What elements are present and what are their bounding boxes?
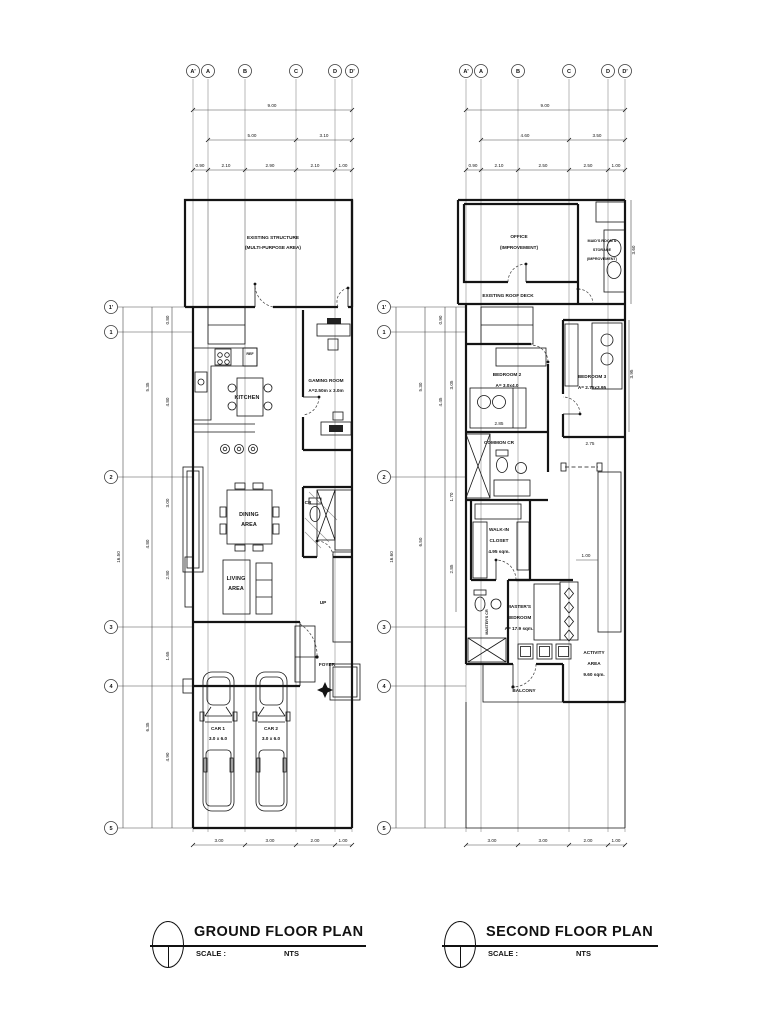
dim-label: 3.60 (631, 245, 636, 254)
ground-left-dimensions: 16.50 5.35 4.80 6.35 0.80 4.80 3.00 2.80… (116, 315, 170, 761)
dim-label: 2.00 (584, 838, 593, 843)
room-label-balcony: BALCONY (512, 688, 536, 693)
grid-col-label: A (479, 69, 483, 75)
grid-row-label: 5 (382, 826, 385, 832)
dim-label: 5.30 (418, 382, 423, 391)
dim-label: 1.00 (612, 163, 621, 168)
car2-size: 3.0 x 6.0 (262, 736, 281, 741)
dim-label: 1.00 (582, 553, 591, 558)
dim-label: 9.00 (268, 103, 277, 108)
second-stairs-main: 1.00 (561, 463, 621, 632)
car-1 (200, 672, 237, 811)
grid-col-label: C (294, 69, 298, 75)
ground-walls (183, 200, 360, 828)
dim-label: 2.90 (266, 163, 275, 168)
ground-plan-title: GROUND FLOOR PLAN (194, 924, 364, 940)
room-area-activity: 9.60 sqm. (583, 672, 604, 677)
room-area-bedroom2: A= 3.0x4.0 (495, 383, 518, 388)
dim-label: 0.80 (165, 315, 170, 324)
dim-label: 0.90 (469, 163, 478, 168)
dim-label: 2.75 (586, 441, 595, 446)
second-walkin-closet: WALK-IN CLOSET 4.95 sqm. (471, 500, 530, 580)
room-label-dining: AREA (241, 522, 257, 528)
room-label-kitchen: KITCHEN (234, 395, 259, 401)
dim-label: 6.35 (145, 722, 150, 731)
scale-label: SCALE : (488, 949, 518, 958)
dim-label: 2.80 (165, 570, 170, 579)
dim-label: 3.00 (215, 838, 224, 843)
dim-label: 5.35 (145, 382, 150, 391)
second-walls (466, 304, 625, 828)
dim-label: 5.00 (248, 133, 257, 138)
grid-col-label: B (516, 69, 520, 75)
dim-label: 0.90 (438, 315, 443, 324)
room-label-gaming: GAMING ROOM (308, 378, 343, 383)
second-left-dimensions: 16.60 5.30 6.50 0.90 4.45 3.05 1.70 2.85 (389, 315, 454, 573)
second-common-cr: COMMON CR (466, 432, 548, 500)
dim-label: 1.00 (612, 838, 621, 843)
grid-col-label: A' (190, 69, 196, 75)
ground-foyer: FOYER (295, 624, 336, 698)
grid-row-label: 3 (109, 625, 112, 631)
room-area-bedroom3: A= 2.75x3.95 (578, 385, 607, 390)
second-right-dimensions: 3.60 3.95 (629, 200, 636, 432)
ground-floor-plan-drawing: A' A B C D D' 1' 1 2 3 4 5 9.00 5.00 3.1… (95, 52, 395, 892)
dim-label: 0.90 (196, 163, 205, 168)
plan-marker-icon (444, 921, 476, 968)
dim-label: 2.10 (222, 163, 231, 168)
dim-label: 3.10 (320, 133, 329, 138)
second-bedroom2: BEDROOM 2 A= 3.0x4.0 2.85 (466, 344, 549, 432)
star-symbol (317, 682, 333, 698)
second-bedroom3: BEDROOM 3 A= 2.75x3.95 2.75 (563, 320, 625, 446)
dim-label: 3.05 (449, 380, 454, 389)
dim-label: 2.85 (495, 421, 504, 426)
second-bottom-dimensions: 3.00 3.00 2.00 1.00 (464, 838, 627, 847)
room-label-master: MASTER'S (507, 604, 531, 609)
scale-value: NTS (284, 949, 299, 958)
grid-col-label: D' (349, 69, 355, 75)
second-stairs-upper (481, 307, 533, 344)
second-title-block: SECOND FLOOR PLAN SCALE : NTS (442, 918, 658, 970)
room-label-maids: STORAGE (593, 248, 612, 252)
grid-col-label: C (567, 69, 571, 75)
car1-size: 3.0 x 6.0 (209, 736, 228, 741)
ground-bottom-dimensions: 3.00 3.00 2.00 1.00 (191, 838, 354, 847)
dim-label: 3.00 (488, 838, 497, 843)
dim-label: 3.00 (539, 838, 548, 843)
dim-label: 2.50 (539, 163, 548, 168)
car1-label: CAR 1 (211, 726, 225, 731)
dim-label: 3.00 (165, 498, 170, 507)
grid-col-label: A (206, 69, 210, 75)
ground-living: LIVING AREA (185, 557, 272, 614)
dim-label: 4.60 (521, 133, 530, 138)
room-label-foyer: FOYER (319, 662, 336, 667)
car-2 (253, 672, 290, 811)
room-label-roof-deck: EXISTING ROOF DECK (482, 293, 534, 298)
room-area-master: A= 17.9 sqm. (505, 626, 534, 631)
grid-row-label: 5 (109, 826, 112, 832)
second-floor-plan-drawing: A' A B C D D' 1' 1 2 3 4 5 9.00 4.60 3.5… (368, 52, 668, 892)
grid-col-label: D (606, 69, 610, 75)
grid-row-label: 2 (382, 475, 385, 481)
room-label-maids: MAID'S ROOM & (588, 239, 617, 243)
room-label-existing-structure: (MULTI-PURPOSE AREA) (245, 245, 301, 250)
dim-label: 1.70 (449, 492, 454, 501)
dim-label: 1.65 (165, 651, 170, 660)
grid-row-label: 2 (109, 475, 112, 481)
grid-col-label: D (333, 69, 337, 75)
stair-label-up: UP (320, 600, 327, 605)
grid-row-label: 3 (382, 625, 385, 631)
ground-kitchen: REF KITCHEN (193, 348, 272, 454)
room-label-activity: AREA (587, 661, 601, 666)
dim-label: 2.10 (311, 163, 320, 168)
dim-label: 2.50 (584, 163, 593, 168)
ground-dining: DINING AREA (183, 467, 279, 572)
drawing-sheet: A' A B C D D' 1' 1 2 3 4 5 9.00 5.00 3.1… (0, 0, 768, 1024)
grid-col-label: B (243, 69, 247, 75)
second-grid: A' A B C D D' 1' 1 2 3 4 5 (378, 65, 632, 835)
dim-label: 4.80 (165, 397, 170, 406)
dim-label: 2.00 (311, 838, 320, 843)
grid-col-label: D' (622, 69, 628, 75)
room-label-office: OFFICE (510, 234, 527, 239)
grid-col-label: A' (463, 69, 469, 75)
grid-row-label: 1 (382, 330, 385, 336)
room-label-dining: DINING (239, 512, 259, 518)
dim-label: 2.85 (449, 564, 454, 573)
dim-label: 2.10 (495, 163, 504, 168)
second-balcony-activity: BALCONY ACTIVITY AREA 9.60 sqm. (483, 650, 625, 702)
car2-label: CAR 2 (264, 726, 278, 731)
room-label-masters-cr: MASTER'S CR (485, 609, 489, 635)
plan-marker-icon (152, 921, 184, 968)
ground-toilet: CR (305, 492, 337, 557)
ground-top-dimensions: 9.00 5.00 3.10 0.90 2.10 2.90 2.10 1.00 (191, 103, 354, 172)
room-label-cr: CR (305, 500, 312, 505)
second-office-section: OFFICE (IMPROVEMENT) MAID'S ROOM & STORA… (458, 200, 625, 304)
grid-row-label: 1' (109, 305, 114, 311)
room-label-living: LIVING (227, 576, 246, 582)
dim-label: 16.60 (389, 551, 394, 563)
dim-label: 3.95 (629, 369, 634, 378)
second-plan-title: SECOND FLOOR PLAN (486, 924, 653, 940)
room-label-walkin-closet: CLOSET (489, 538, 508, 543)
room-area-walkin-closet: 4.95 sqm. (488, 549, 509, 554)
room-label-existing-structure: EXISTING STRUCTURE (247, 235, 299, 240)
grid-row-label: 1' (382, 305, 387, 311)
dim-label: 4.90 (165, 752, 170, 761)
label-refrigerator: REF (246, 352, 254, 356)
dim-label: 16.50 (116, 551, 121, 563)
ground-gaming-room: GAMING ROOM A=2.50m x 3.0m (303, 318, 351, 435)
room-label-living: AREA (228, 586, 244, 592)
room-label-master: BEDROOM (507, 615, 532, 620)
room-label-bedroom3: BEDROOM 3 (578, 374, 607, 379)
room-label-bedroom2: BEDROOM 2 (493, 372, 522, 377)
room-area-gaming: A=2.50m x 3.0m (308, 388, 343, 393)
ground-title-block: GROUND FLOOR PLAN SCALE : NTS (150, 918, 366, 970)
second-master-bedroom: MASTER'S BEDROOM A= 17.9 sqm. (505, 580, 578, 659)
second-top-dimensions: 9.00 4.60 3.50 0.90 2.10 2.50 2.50 1.00 (464, 103, 627, 172)
room-label-activity: ACTIVITY (583, 650, 605, 655)
dim-label: 1.00 (339, 838, 348, 843)
dim-label: 4.45 (438, 397, 443, 406)
second-masters-cr: MASTER'S CR (466, 580, 513, 664)
room-label-common-cr: COMMON CR (484, 440, 515, 445)
dim-label: 1.00 (339, 163, 348, 168)
grid-row-label: 1 (109, 330, 112, 336)
dim-label: 4.80 (145, 539, 150, 548)
dim-label: 3.50 (593, 133, 602, 138)
dim-label: 9.00 (541, 103, 550, 108)
scale-value: NTS (576, 949, 591, 958)
ground-stairs-main: UP (317, 490, 352, 642)
room-label-office: (IMPROVEMENT) (500, 245, 538, 250)
room-label-walkin-closet: WALK-IN (489, 527, 510, 532)
dim-label: 3.00 (266, 838, 275, 843)
room-label-maids: (IMPROVEMENT) (587, 257, 618, 261)
dim-label: 6.50 (418, 537, 423, 546)
ground-stairs-upper (208, 307, 245, 344)
scale-label: SCALE : (196, 949, 226, 958)
ground-existing-structure: EXISTING STRUCTURE (MULTI-PURPOSE AREA) (185, 200, 352, 307)
